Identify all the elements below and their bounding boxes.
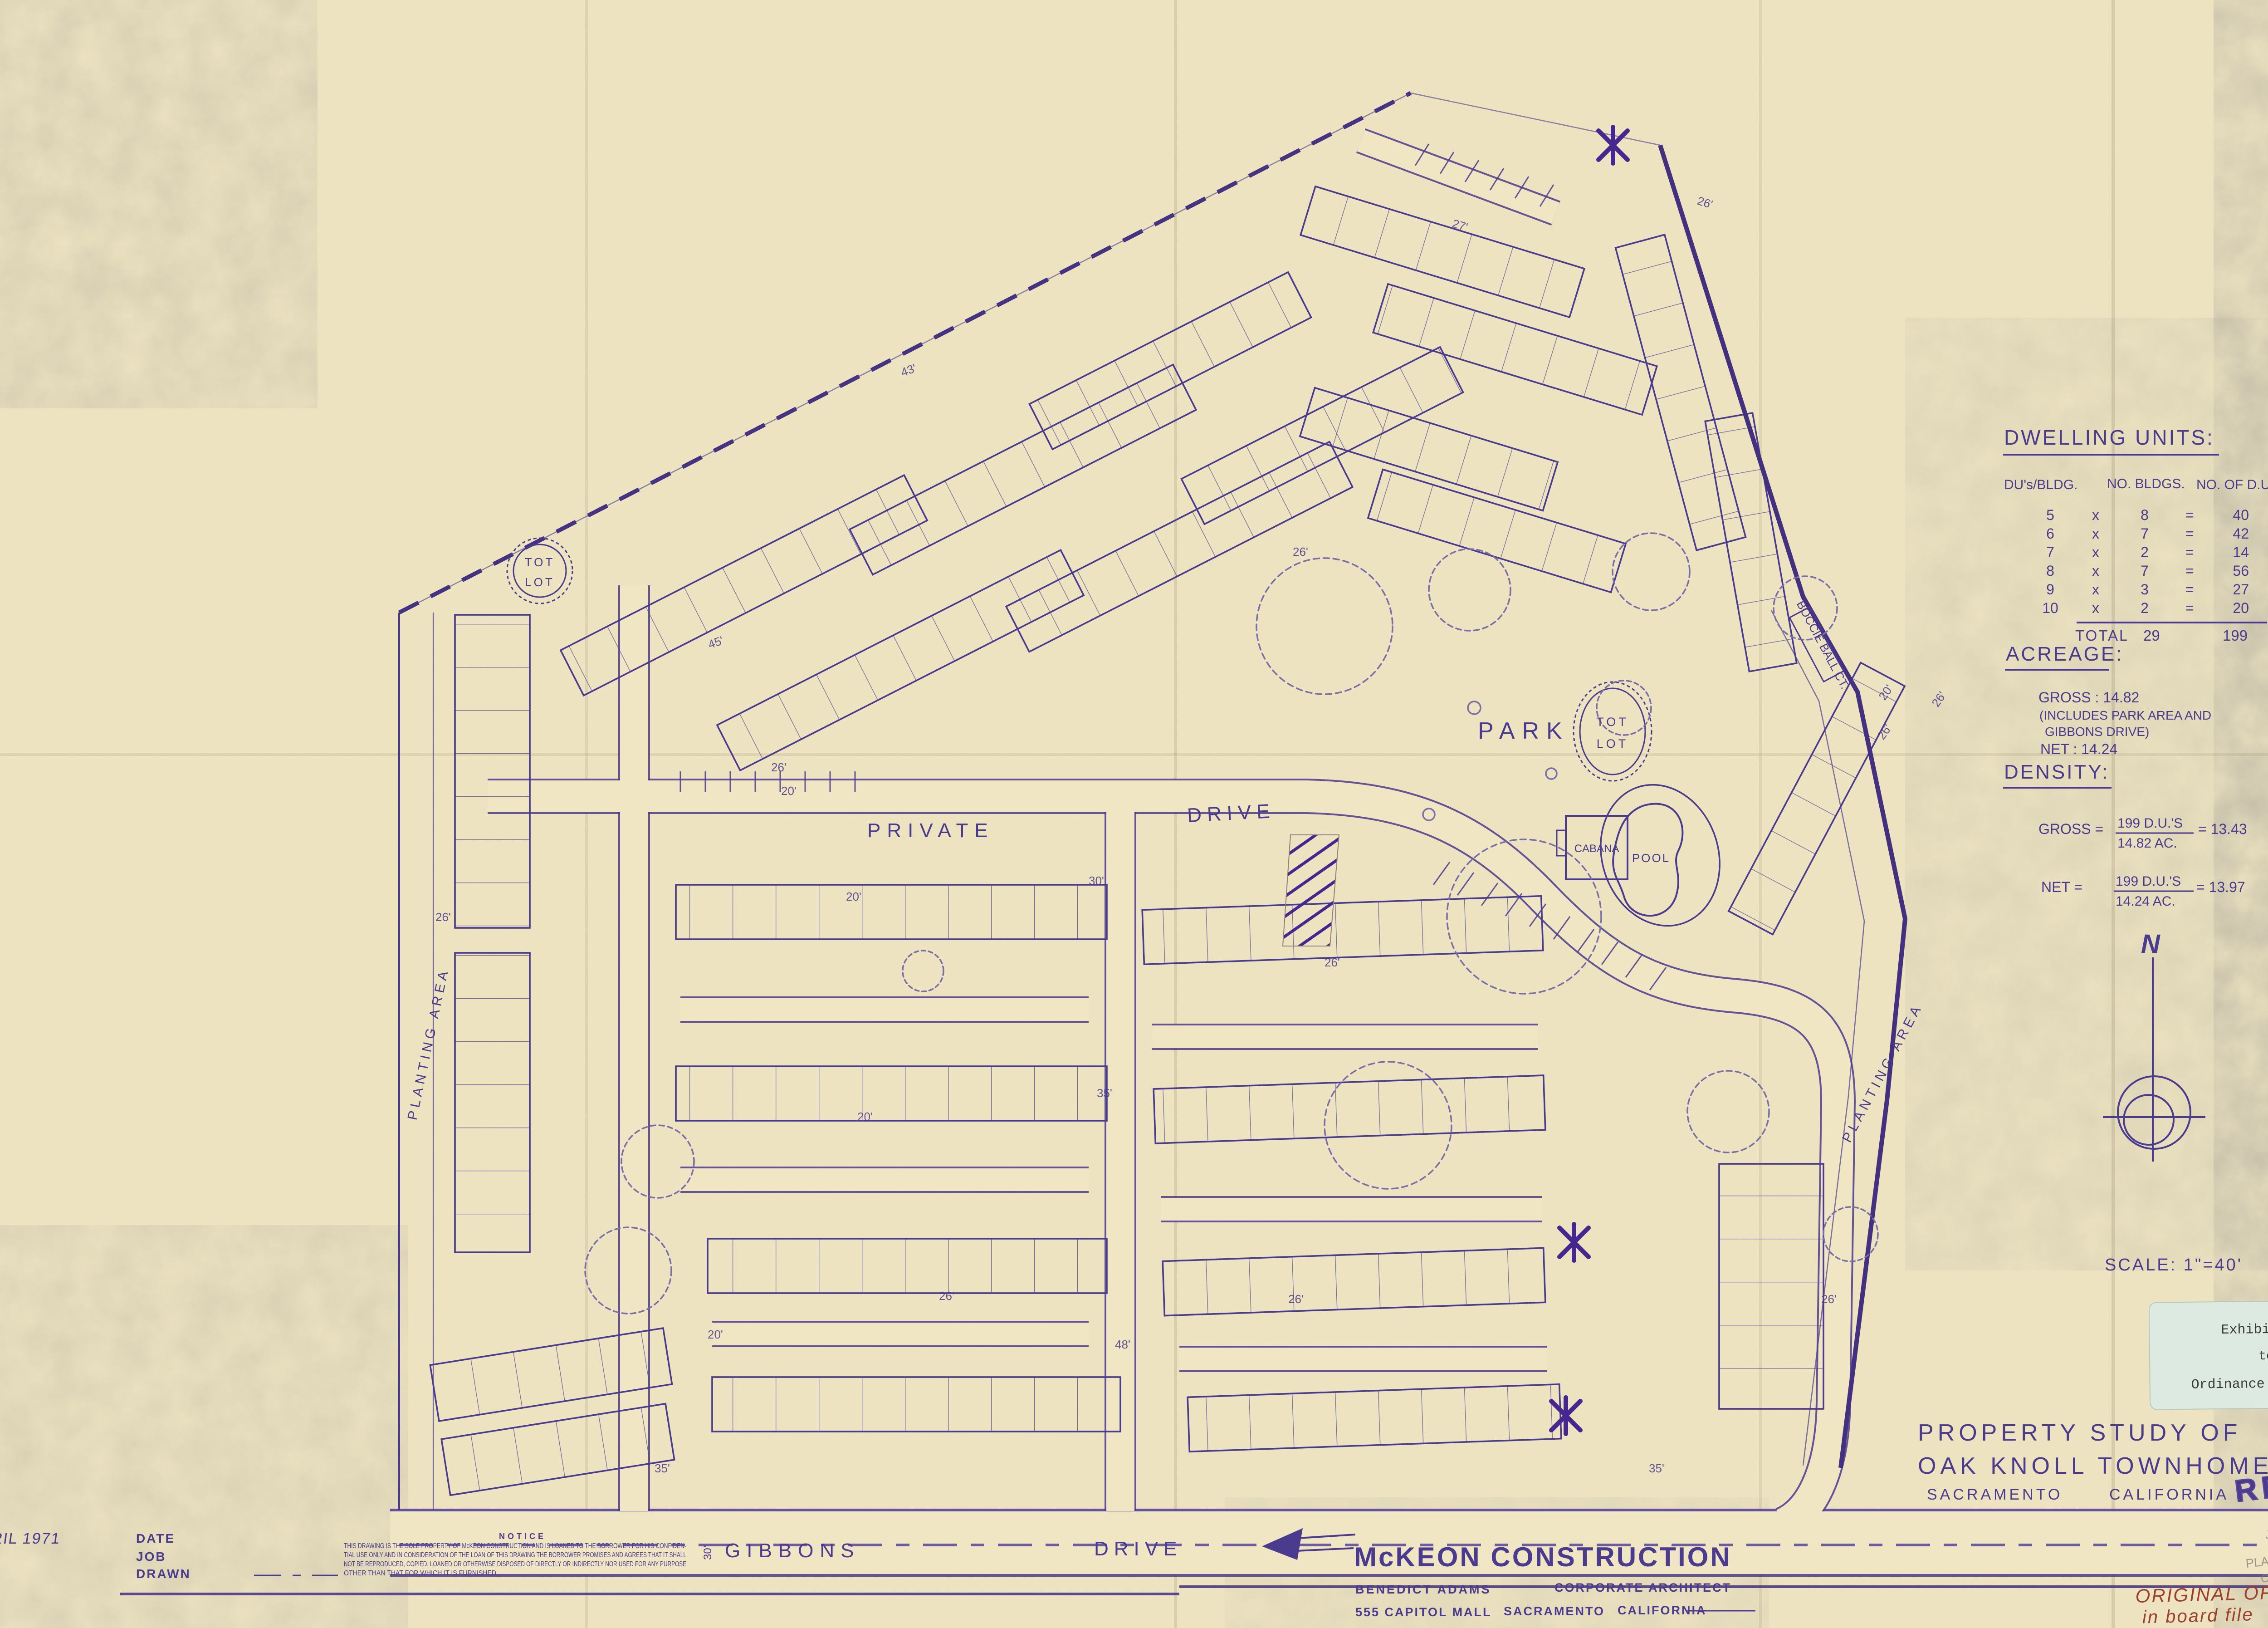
blueprint-sheet: N SCALE: 1"=40' PRIVATE DRIVE GIBBONS DR… [0,0,2268,1628]
du-bldgs: 7 [2141,525,2149,542]
svg-text:TOTAL: TOTAL [2075,627,2129,644]
firm-address: 555 CAPITOL MALL [1355,1605,1492,1619]
date-value: APRIL 1971 [0,1530,62,1547]
dim-label: 20' [857,1110,873,1123]
svg-text:199 D.U.'S: 199 D.U.'S [2117,816,2183,831]
du-count: 8 [2046,563,2054,579]
dim-label: 26' [1293,545,1308,559]
du-total: 40 [2233,507,2249,523]
dim-label: 26' [1821,1292,1837,1306]
du-count: 7 [2046,544,2054,560]
svg-text:in board file: in board file [2142,1604,2254,1627]
svg-text:Ordinance No. 71-PD-: Ordinance No. 71-PD- [2191,1376,2268,1393]
du-count: 5 [2046,507,2054,523]
svg-text:(INCLUDES PARK AREA AND: (INCLUDES PARK AREA AND [2039,708,2211,722]
du-times: x [2092,507,2099,523]
title-city: SACRAMENTO [1927,1486,2063,1503]
svg-text:DATE: DATE [136,1531,175,1545]
hatched-walkway [1283,835,1339,946]
title-state: CALIFORNIA [2109,1486,2229,1503]
street-width-label: 30' [702,1546,714,1560]
du-times: x [2092,581,2099,598]
dim-label: 26' [1325,956,1340,969]
building [712,1377,1120,1432]
du-equals: = [2185,544,2194,560]
site-plan-drawing: N SCALE: 1"=40' PRIVATE DRIVE GIBBONS DR… [0,0,2268,1628]
dim-label: 35' [1649,1461,1664,1475]
svg-text:199: 199 [2223,627,2248,644]
pool-label: POOL [1632,851,1670,865]
svg-text:NET : 14.24: NET : 14.24 [2040,741,2117,757]
notice-line: TIAL USE ONLY AND IN CONSIDERATION OF TH… [344,1551,686,1559]
dwelling-units-heading: DWELLING UNITS: [2004,426,2214,449]
svg-text:DRAWN: DRAWN [136,1567,191,1581]
dim-label: 35' [1097,1086,1112,1100]
dim-label: 26' [435,910,451,924]
du-equals: = [2185,581,2194,598]
hand-notes: ORIGINAL OF EXHIBIT A in board file [2135,1579,2268,1628]
du-total: 20 [2233,600,2249,616]
svg-text:= 13.43: = 13.43 [2198,821,2247,837]
firm-city: SACRAMENTO [1504,1604,1605,1618]
title-line1: PROPERTY STUDY OF [1918,1420,2242,1446]
du-bldgs: 3 [2141,581,2149,598]
title-line2: OAK KNOLL TOWNHOMES [1918,1453,2268,1479]
notice-line: THIS DRAWING IS THE SOLE PROPERTY OF McK… [344,1542,686,1550]
svg-text:NO. BLDGS.: NO. BLDGS. [2107,476,2185,491]
dim-label: 26' [771,760,787,774]
svg-text:14.24 AC.: 14.24 AC. [2116,894,2175,909]
dim-label: 20' [846,890,861,903]
firm-role: CORPORATE ARCHITECT [1554,1581,1731,1594]
du-total: 27 [2233,581,2249,598]
building [708,1239,1107,1293]
du-bldgs: 2 [2141,600,2149,616]
tot-lot-park-2: LOT [1597,737,1629,750]
dim-label: 26' [939,1289,954,1303]
acreage-heading: ACREAGE: [2006,643,2123,665]
du-times: x [2092,563,2099,579]
svg-text:14.82 AC.: 14.82 AC. [2117,836,2177,851]
du-times: x [2092,525,2099,542]
building [455,953,530,1252]
scale-label: SCALE: 1"=40' [2105,1255,2243,1275]
du-count: 10 [2042,600,2058,616]
firm-name: McKEON CONSTRUCTION [1354,1542,1732,1572]
building [455,615,530,928]
du-equals: = [2185,563,2194,579]
svg-text:GIBBONS DRIVE): GIBBONS DRIVE) [2045,725,2149,739]
north-label: N [2141,929,2160,959]
building [676,885,1107,939]
dim-label: 20' [781,784,797,798]
dim-label: 48' [1115,1338,1130,1351]
svg-text:= 13.97: = 13.97 [2196,879,2245,895]
du-total: 42 [2233,525,2249,542]
street-private: PRIVATE [867,819,994,842]
dim-label: 20' [708,1328,723,1341]
du-bldgs: 7 [2141,563,2149,579]
building [676,1066,1107,1121]
du-equals: = [2185,600,2194,616]
du-times: x [2092,600,2099,616]
density-heading: DENSITY: [2004,761,2110,783]
du-total: 56 [2233,563,2249,579]
building [1719,1164,1823,1409]
du-bldgs: 8 [2141,507,2149,523]
exhibit-sticker: Exhibit "A" to Ordinance No. 71-PD- 8 [2149,1300,2268,1409]
notice-line: NOT BE REPRODUCED, COPIED, LOANED OR OTH… [344,1560,686,1568]
street-gibbons: GIBBONS [725,1540,860,1562]
svg-text:199 D.U.'S: 199 D.U.'S [2116,874,2181,889]
svg-text:29: 29 [2143,627,2160,644]
svg-text:DU's/BLDG.: DU's/BLDG. [2004,477,2077,492]
svg-text:GROSS =: GROSS = [2038,821,2103,837]
du-bldgs: 2 [2141,544,2149,560]
street-drive-lower: DRIVE [1094,1538,1182,1560]
svg-text:GROSS : 14.82: GROSS : 14.82 [2038,689,2139,706]
svg-text:JOB: JOB [136,1550,166,1564]
park-label: PARK [1478,718,1569,744]
dim-label: 26' [1288,1292,1304,1306]
svg-text:Exhibit "A": Exhibit "A" [2221,1322,2268,1338]
du-equals: = [2185,525,2194,542]
firm-person: BENEDICT ADAMS [1355,1583,1491,1596]
du-times: x [2092,544,2099,560]
svg-text:NO. OF D.U's: NO. OF D.U's [2196,477,2268,492]
dim-label: 30' [1089,874,1104,888]
du-total: 14 [2233,544,2249,560]
notice-line: OTHER THAN THAT FOR WHICH IT IS FURNISHE… [344,1569,498,1577]
cabana-label: CABANA [1574,843,1619,855]
du-count: 9 [2046,581,2054,598]
du-count: 6 [2046,525,2054,542]
svg-text:NET =: NET = [2041,879,2082,895]
notice-heading: NOTICE [499,1532,546,1541]
tot-lot-park-1: TOT [1596,715,1629,729]
svg-text:to: to [2258,1349,2268,1363]
du-equals: = [2185,507,2194,523]
dim-label: 35' [655,1461,670,1475]
tot-lot-west-2: LOT [525,575,555,589]
tot-lot-west-1: TOT [525,555,555,569]
street-drive-upper: DRIVE [1187,800,1276,827]
